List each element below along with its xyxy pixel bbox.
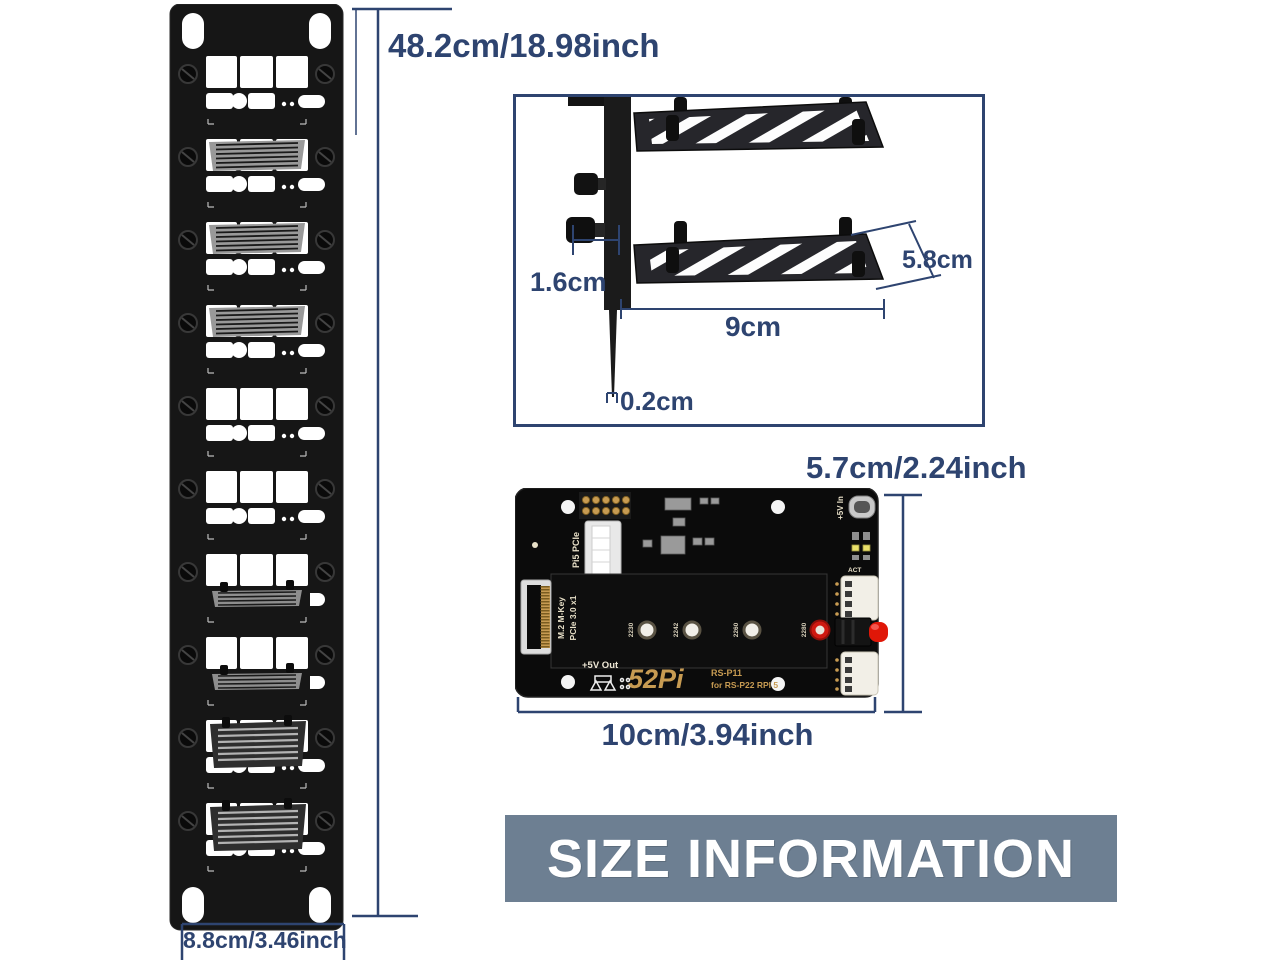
fpc-connector bbox=[585, 521, 621, 579]
model-label: RS-P11 bbox=[711, 668, 742, 678]
m2-socket bbox=[521, 580, 551, 654]
m2-key-label: M.2 M-Key bbox=[556, 597, 566, 639]
bracket-post bbox=[604, 97, 631, 310]
banner-text: SIZE INFORMATION bbox=[547, 828, 1075, 890]
52pi-logo: 52Pi bbox=[628, 664, 684, 694]
pcb-image: Pi5 PCIe M.2 M-Key PCIe 3.0 x1 bbox=[515, 488, 895, 700]
act-label: ACT bbox=[848, 567, 861, 574]
thumb-screw bbox=[574, 173, 606, 195]
bracket-detail-box: 1.6cm 9cm 5.8cm 0.2cm bbox=[513, 94, 985, 427]
panel-width-label: 8.8cm/3.46inch bbox=[183, 927, 343, 954]
m2-size-2260: 2260 bbox=[733, 622, 740, 637]
m2-size-2280: 2280 bbox=[801, 622, 808, 637]
bracket-thickness-label: 0.2cm bbox=[620, 386, 694, 416]
pcb-height-label: 5.7cm/2.24inch bbox=[806, 450, 1027, 486]
bracket-depth-label: 5.8cm bbox=[902, 246, 973, 274]
gpio-header bbox=[579, 492, 631, 519]
pcb-dot bbox=[532, 542, 538, 548]
bracket-width-label: 9cm bbox=[725, 311, 781, 342]
pcb-hole bbox=[561, 500, 575, 514]
usbc-port bbox=[849, 496, 875, 518]
bracket-offset-label: 1.6cm bbox=[530, 267, 607, 297]
size-information-banner: SIZE INFORMATION bbox=[505, 815, 1117, 902]
power-button bbox=[835, 618, 888, 646]
panel-height-label: 48.2cm/18.98inch bbox=[388, 27, 660, 65]
pi5-pcie-label: Pi5 PCIe bbox=[571, 532, 581, 568]
bracket-blade bbox=[609, 310, 617, 397]
bracket-top-bar bbox=[568, 97, 604, 106]
pcb-hole bbox=[771, 500, 785, 514]
v5-in-label: +5V In bbox=[836, 496, 845, 520]
for-model-label: for RS-P22 RPI 5 bbox=[711, 680, 778, 690]
m2-size-2242: 2242 bbox=[673, 622, 680, 637]
pcb-width-label: 10cm/3.94inch bbox=[595, 717, 820, 753]
jst-connector bbox=[835, 576, 878, 620]
bracket-bottom-shelf bbox=[634, 217, 883, 283]
size-information-figure: 48.2cm/18.98inch 8.8cm/3.46inch 5.7cm/2.… bbox=[0, 0, 1280, 960]
pcie-gen-label: PCIe 3.0 x1 bbox=[568, 595, 578, 640]
jst-connector bbox=[835, 652, 878, 695]
pcb-hole bbox=[561, 675, 575, 689]
v5-out-label: +5V Out bbox=[582, 660, 619, 671]
m2-size-2230: 2230 bbox=[628, 622, 635, 637]
bracket-diagram: 1.6cm 9cm 5.8cm 0.2cm bbox=[516, 97, 982, 424]
bracket-top-shelf bbox=[634, 97, 883, 151]
